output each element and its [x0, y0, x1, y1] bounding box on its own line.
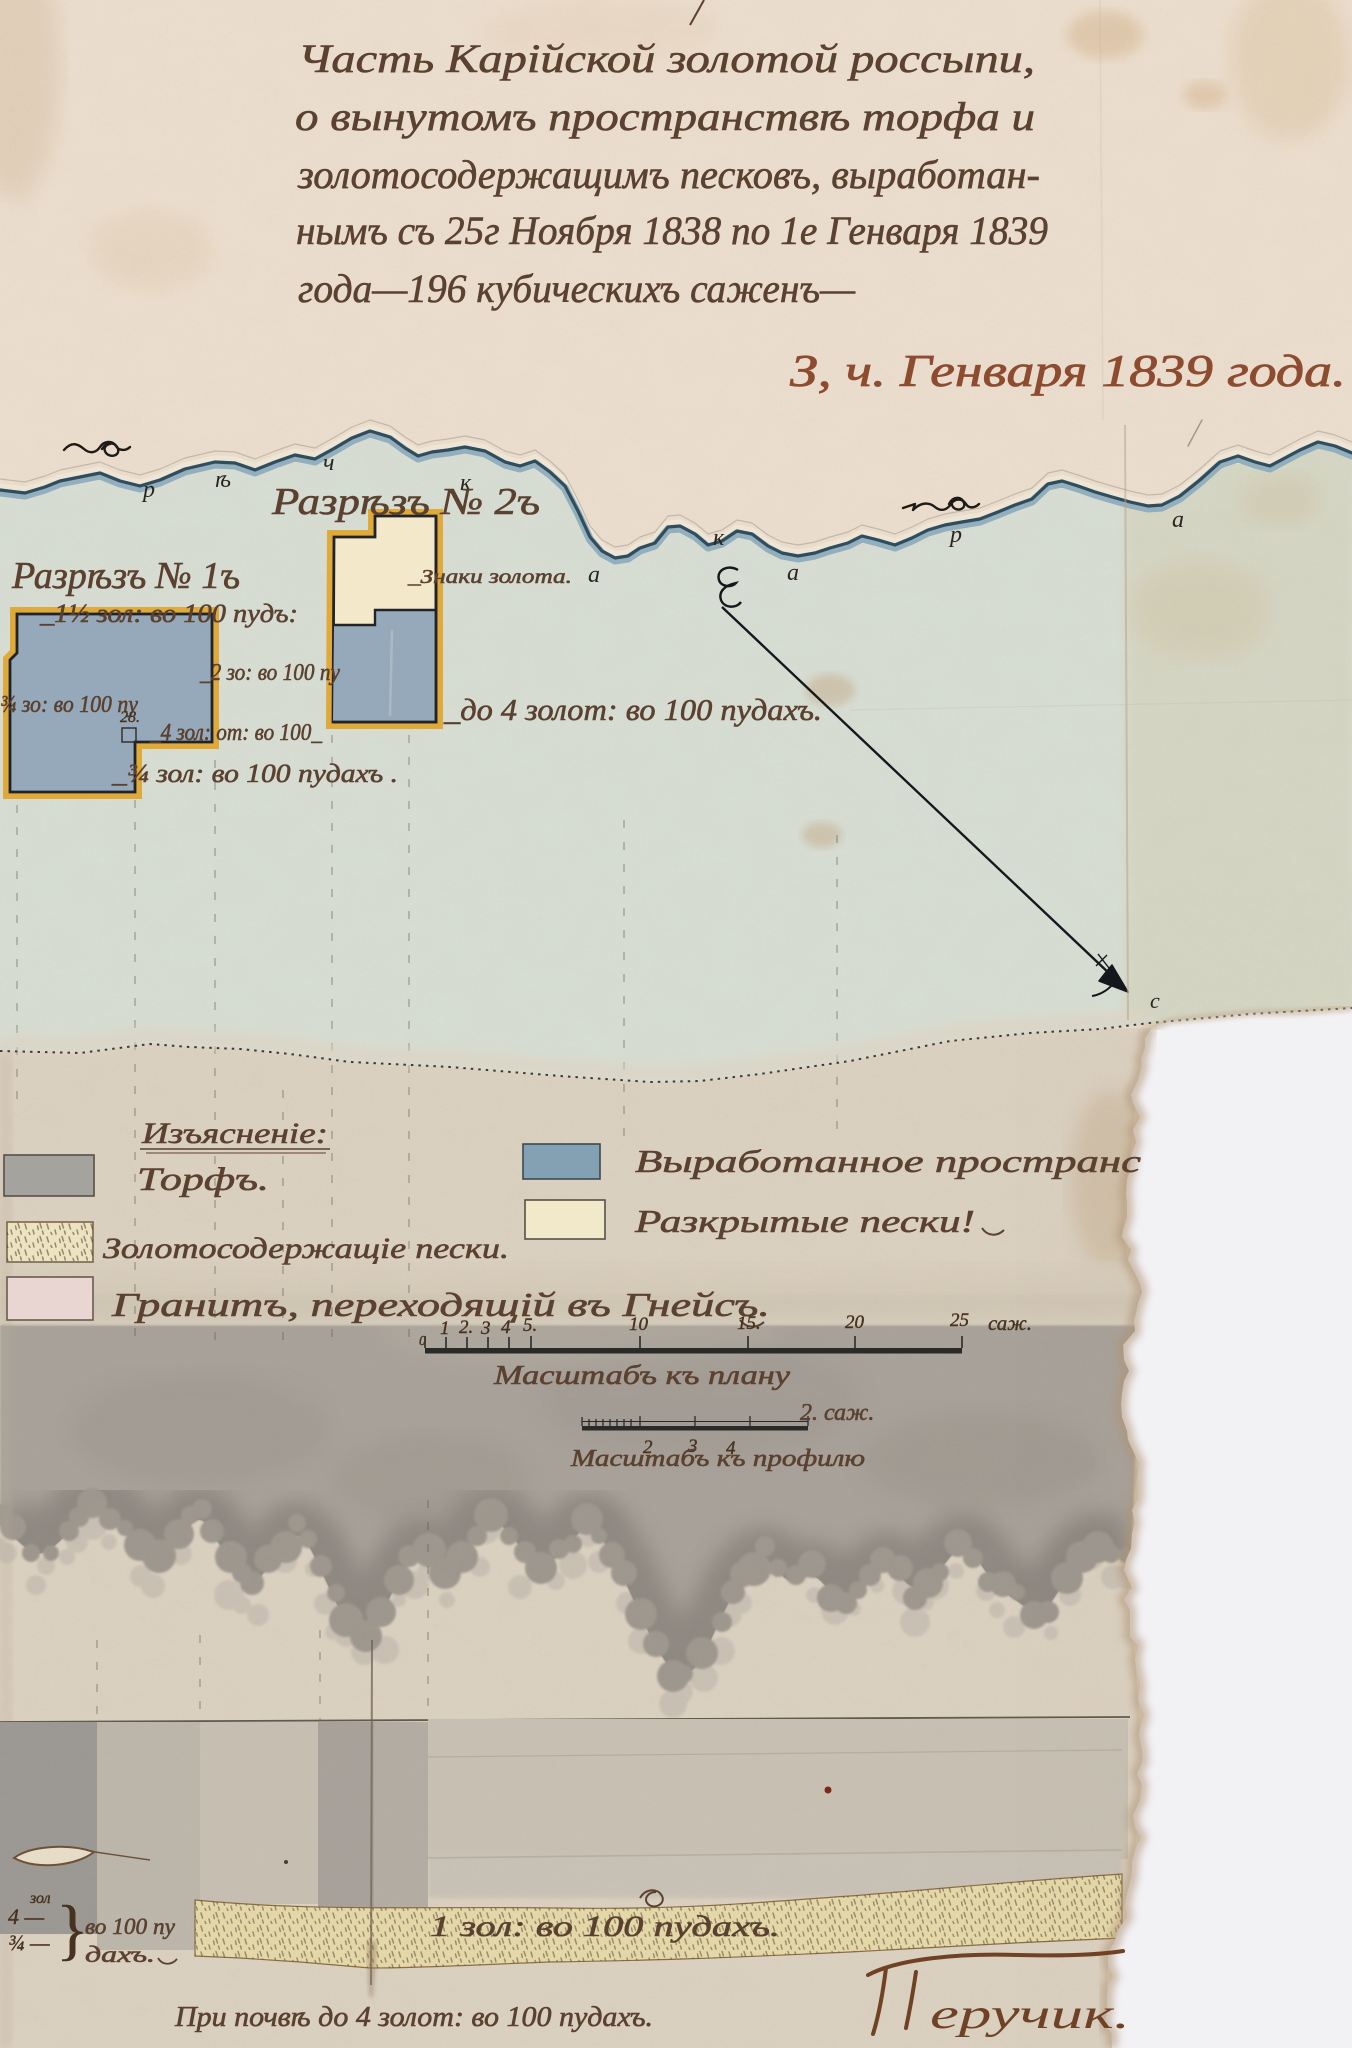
svg-text:р: р: [141, 477, 155, 503]
svg-text:2.: 2.: [459, 1317, 473, 1338]
svg-text:Изъясненiе:: Изъясненiе:: [141, 1117, 328, 1150]
svg-text:1 зол: во 100 пудахъ.: 1 зол: во 100 пудахъ.: [430, 1910, 780, 1943]
svg-text:4 —: 4 —: [8, 1904, 45, 1929]
svg-text:З, ч. Генваря 1839 года.: З, ч. Генваря 1839 года.: [790, 345, 1346, 396]
svg-text:еручик.: еручик.: [930, 1992, 1130, 2038]
svg-text:а: а: [588, 562, 600, 588]
svg-text:Выработанное пространс: Выработанное пространс: [635, 1143, 1141, 1179]
svg-text:¾ зо: во 100 пу: ¾ зо: во 100 пу: [0, 692, 138, 718]
svg-text:¾ —: ¾ —: [8, 1930, 50, 1955]
svg-text:3: 3: [480, 1318, 491, 1339]
svg-text:20: 20: [845, 1312, 865, 1333]
svg-text:во 100 пу: во 100 пу: [85, 1914, 176, 1939]
svg-text:_1½ зол: во 100 пудъ:: _1½ зол: во 100 пудъ:: [39, 599, 298, 628]
svg-text:нымъ съ 25г Ноября 1838 по 1е: нымъ съ 25г Ноября 1838 по 1е Генваря 18…: [296, 208, 1048, 253]
svg-text:Масштабъ къ профилю: Масштабъ къ профилю: [570, 1446, 865, 1472]
svg-text:_¾ зол: во 100 пудахъ .: _¾ зол: во 100 пудахъ .: [111, 759, 398, 788]
svg-text:1: 1: [440, 1318, 450, 1339]
svg-text:Золотосодержащiе пески.: Золотосодержащiе пески.: [103, 1232, 509, 1265]
svg-text:При почвѣ до 4 золот: во 100 п: При почвѣ до 4 золот: во 100 пудахъ.: [174, 2002, 653, 2033]
svg-text:4: 4: [501, 1317, 511, 1338]
svg-text:Торфъ.: Торфъ.: [137, 1162, 269, 1198]
svg-text:к: к: [713, 525, 725, 551]
svg-text:Часть Карійской золотой россып: Часть Карійской золотой россыпи,: [298, 36, 1035, 81]
svg-text:золотосодержащимъ песковъ, выр: золотосодержащимъ песковъ, выработан-: [297, 152, 1040, 197]
svg-text:Разрѣзъ № 1ъ: Разрѣзъ № 1ъ: [11, 555, 240, 597]
svg-text:Разрѣзъ № 2ъ: Разрѣзъ № 2ъ: [271, 481, 540, 523]
svg-text:10: 10: [629, 1314, 649, 1335]
svg-text:а: а: [1172, 507, 1184, 533]
svg-text:0: 0: [419, 1334, 426, 1349]
svg-text:28.: 28.: [120, 709, 140, 726]
svg-text:Разкрытые пески!: Разкрытые пески!: [634, 1203, 975, 1239]
svg-text:15.: 15.: [737, 1313, 761, 1334]
svg-text:ч: ч: [323, 450, 334, 476]
svg-text:2. саж.: 2. саж.: [800, 1400, 874, 1426]
svg-text:ѣ: ѣ: [215, 467, 231, 493]
svg-text:_до 4 золот: во 100 пудахъ.: _до 4 золот: во 100 пудахъ.: [443, 692, 822, 727]
svg-text:дахъ.: дахъ.: [85, 1942, 155, 1967]
svg-text:р: р: [948, 522, 962, 548]
svg-text:Масштабъ къ плану: Масштабъ къ плану: [493, 1360, 790, 1390]
svg-text:}: }: [56, 1891, 89, 1967]
svg-text:_4 зол: от: во 100_: _4 зол: от: во 100_: [149, 720, 323, 746]
svg-text:5.: 5.: [523, 1315, 537, 1336]
svg-text:года—196 кубическихъ саженъ—: года—196 кубическихъ саженъ—: [298, 266, 855, 311]
svg-text:саж.: саж.: [988, 1311, 1032, 1335]
svg-text:а: а: [787, 560, 799, 586]
svg-text:с: с: [1150, 988, 1160, 1013]
svg-text:_2 зо: во 100 пу: _2 зо: во 100 пу: [199, 660, 340, 686]
svg-text:_Знаки золота.: _Знаки золота.: [407, 566, 572, 588]
svg-text:25: 25: [950, 1310, 969, 1331]
svg-text:о вынутомъ пространствѣ торфа: о вынутомъ пространствѣ торфа и: [295, 94, 1035, 139]
